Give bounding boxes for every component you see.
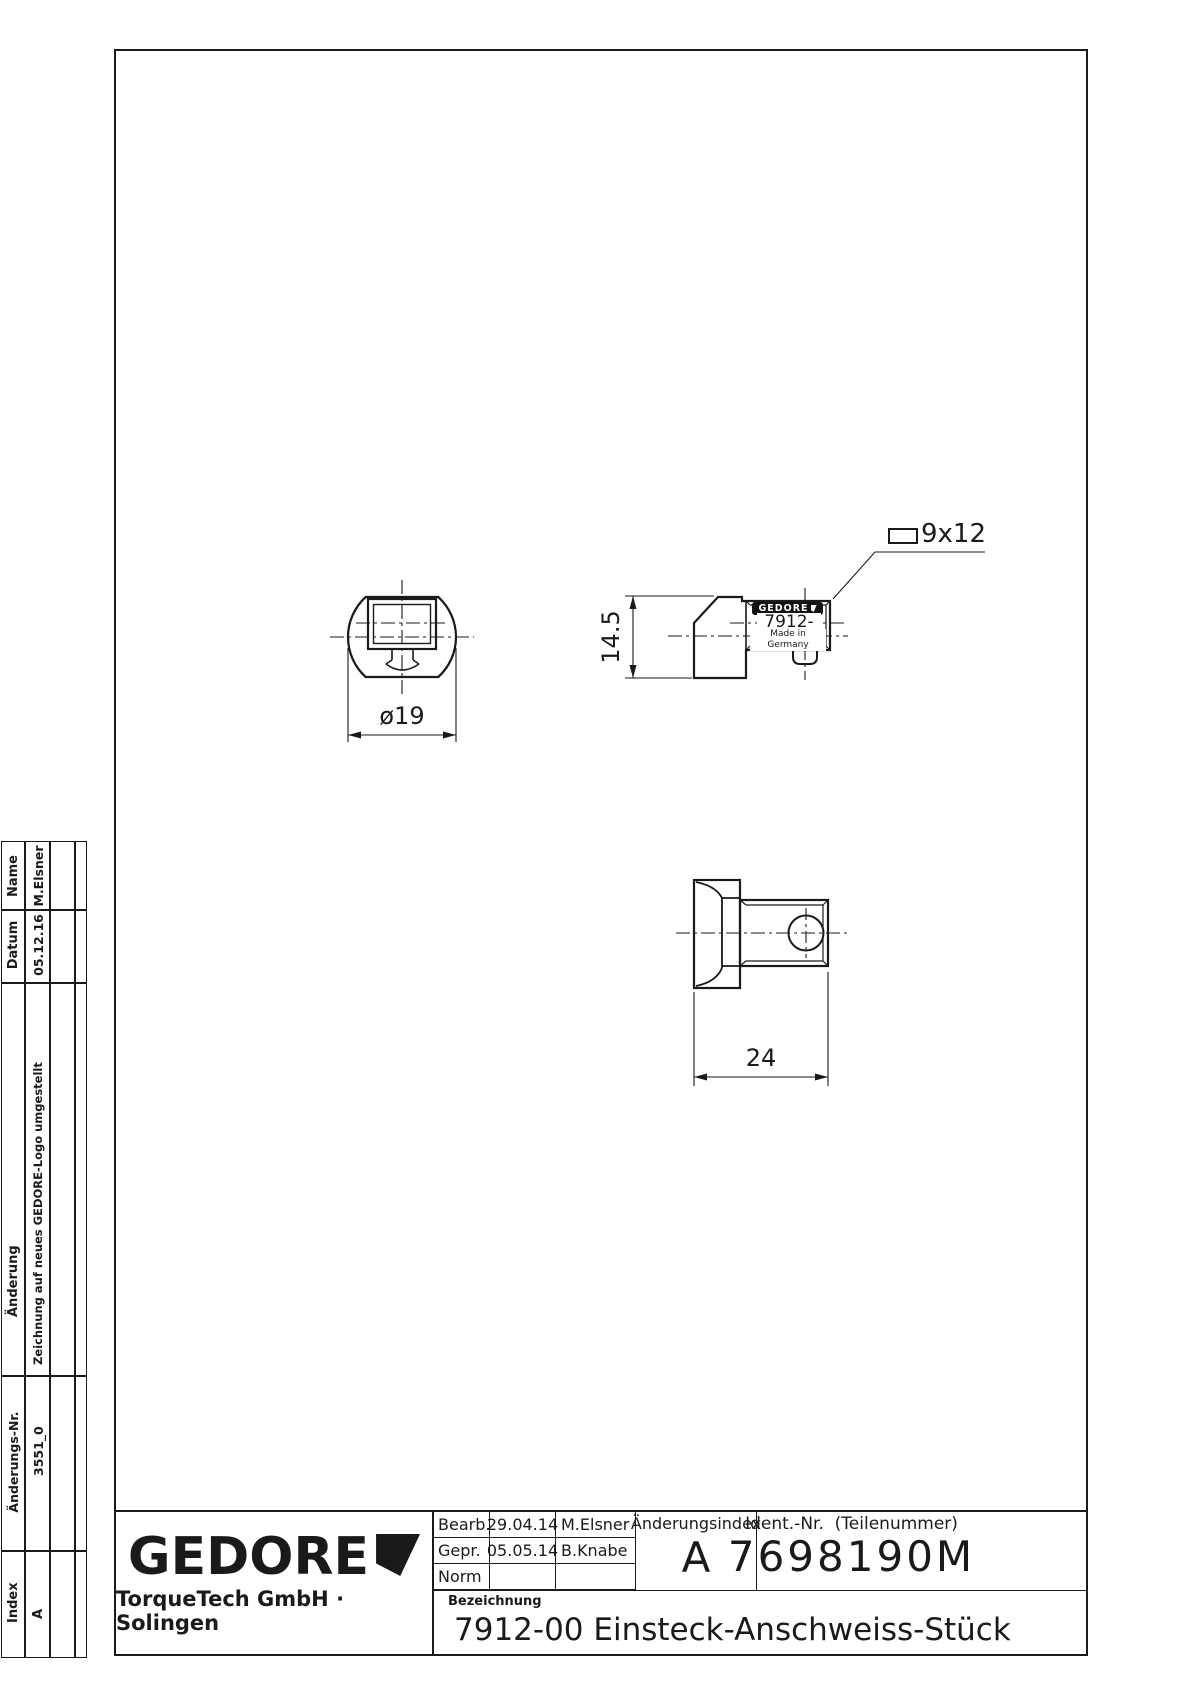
rev-header-index: Index bbox=[3, 1551, 24, 1657]
revision-table-divider bbox=[24, 842, 26, 1657]
revision-table-divider bbox=[49, 842, 51, 1657]
technical-drawing-page: ø19 14.5 24 9x12 GEDORE 7912-00 Made in … bbox=[0, 0, 1190, 1684]
rev-value-index: A bbox=[27, 1551, 49, 1657]
aenderungsindex-value: A bbox=[682, 1537, 711, 1579]
rev-header-name: Name bbox=[3, 845, 24, 907]
bezeichnung-label: Bezeichnung bbox=[448, 1594, 542, 1609]
cell-gepr-date: 05.05.14 bbox=[490, 1538, 556, 1564]
ident-nr-label: Ident.-Nr. (Teilenummer) bbox=[745, 1514, 958, 1534]
title-block: GEDORE TorqueTech GmbH · Solingen Bearb.… bbox=[114, 1510, 1088, 1656]
cell-bezeichnung: Bezeichnung 7912-00 Einsteck-Anschweiss-… bbox=[434, 1590, 1086, 1654]
ident-nr-value: 7698190M bbox=[728, 1536, 975, 1578]
rev-value-aenderungs-nr: 3551_0 bbox=[27, 1376, 49, 1548]
cell-ident-nr: Ident.-Nr. (Teilenummer) 7698190M bbox=[757, 1512, 1086, 1590]
callout-9x12: 9x12 bbox=[921, 521, 991, 548]
rev-value-name: M.Elsner bbox=[27, 845, 49, 907]
drawing-frame bbox=[114, 49, 1088, 1656]
revision-table: Name Datum Änderung Änderungs-Nr. Index … bbox=[1, 841, 87, 1658]
dim-width-24: 24 bbox=[731, 1046, 791, 1071]
cell-norm-label: Norm bbox=[434, 1564, 490, 1590]
cell-gepr-label: Gepr. bbox=[434, 1538, 490, 1564]
cell-bearb-name: M.Elsner bbox=[556, 1512, 636, 1538]
bezeichnung-value: 7912-00 Einsteck-Anschweiss-Stück bbox=[454, 1612, 1011, 1648]
aenderungsindex-label: Änderungsindex bbox=[631, 1514, 761, 1533]
gedore-flag-icon bbox=[811, 605, 817, 612]
gedore-logo: GEDORE bbox=[128, 1531, 420, 1583]
cell-bearb-label: Bearb. bbox=[434, 1512, 490, 1538]
company-name: TorqueTech GmbH · Solingen bbox=[116, 1587, 432, 1635]
cell-norm-date bbox=[490, 1564, 556, 1590]
gedore-logo-text: GEDORE bbox=[128, 1531, 369, 1583]
rev-value-datum: 05.12.16 bbox=[27, 910, 49, 980]
cell-norm-name bbox=[556, 1564, 636, 1590]
rev-header-aenderungs-nr: Änderungs-Nr. bbox=[3, 1376, 24, 1548]
revision-table-divider bbox=[2, 982, 86, 984]
gedore-flag-icon bbox=[376, 1534, 420, 1576]
rev-header-datum: Datum bbox=[3, 910, 24, 980]
dim-diameter-19: ø19 bbox=[372, 704, 432, 729]
rev-header-aenderung: Änderung bbox=[3, 985, 24, 1373]
rev-value-aenderung: Zeichnung auf neues GEDORE-Logo umgestel… bbox=[27, 985, 49, 1373]
revision-table-divider bbox=[74, 842, 76, 1657]
title-block-logo-area: GEDORE TorqueTech GmbH · Solingen bbox=[116, 1512, 434, 1654]
tang-made-in-germany: Made in Germany bbox=[750, 629, 826, 651]
cell-bearb-date: 29.04.14 bbox=[490, 1512, 556, 1538]
dim-height-14-5: 14.5 bbox=[599, 602, 625, 672]
cell-gepr-name: B.Knabe bbox=[556, 1538, 636, 1564]
